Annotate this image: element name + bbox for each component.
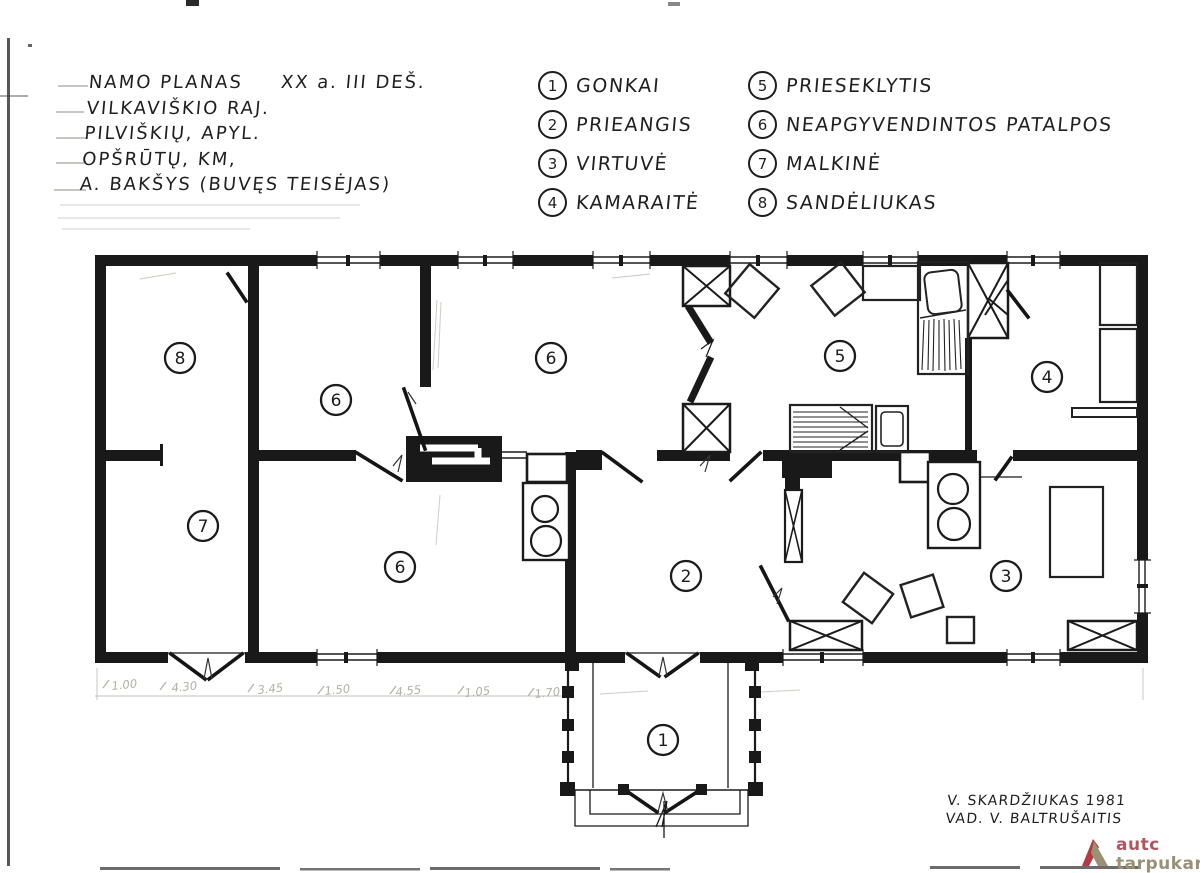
- parish-line: PILVIŠKIŲ, APYL.: [83, 121, 422, 147]
- plan-era: XX a. III DEŠ.: [280, 72, 427, 93]
- window: [317, 649, 377, 666]
- room-label: 6: [536, 343, 566, 373]
- legend-item: 5 PRIESEKLYTIS: [748, 72, 1113, 99]
- cook-stove: [523, 483, 569, 560]
- logo-text-top: autc: [1116, 835, 1160, 855]
- svg-text:1.70: 1.70: [534, 684, 561, 701]
- bed: [918, 262, 968, 374]
- chair: [901, 575, 944, 618]
- svg-text:3.45: 3.45: [257, 680, 284, 697]
- chair: [725, 264, 779, 318]
- title-line: NAMO PLANASXX a. III DEŠ.: [88, 70, 427, 96]
- svg-text:6: 6: [546, 349, 557, 369]
- door-leaf: [603, 453, 641, 481]
- village-line: OPŠRŪTŲ, KM,: [81, 147, 420, 173]
- door-leaf: [1008, 291, 1028, 317]
- legend-label: GONKAI: [575, 75, 661, 97]
- legend-item: 2 PRIEANGIS: [538, 111, 700, 138]
- legend-label: VIRTUVĖ: [575, 153, 669, 175]
- svg-text:4.55: 4.55: [395, 682, 422, 699]
- svg-text:1.00: 1.00: [111, 676, 138, 693]
- svg-text:5: 5: [835, 347, 846, 367]
- logo-triangle-icon: [1082, 839, 1108, 866]
- legend-label: SANDĖLIUKAS: [785, 192, 938, 214]
- zigzag-wall: [688, 306, 713, 402]
- door-leaf: [761, 567, 788, 620]
- legend-column-2: 5 PRIESEKLYTIS 6 NEAPGYVENDINTOS PATALPO…: [748, 72, 1113, 228]
- plan-title: NAMO PLANAS: [88, 72, 244, 93]
- window: [1134, 560, 1151, 613]
- dimension-numbers: 1.00 4.30 3.45 1.50 4.55 1.05 1.70: [111, 676, 561, 701]
- door-leaf: [357, 453, 401, 480]
- chimney-box: [790, 621, 862, 650]
- signature-block: V. SKARDŽIUKAS 1981 VAD. V. BALTRUŠAITIS: [945, 792, 1127, 828]
- legend-item: 6 NEAPGYVENDINTOS PATALPOS: [748, 111, 1113, 138]
- window: [730, 251, 787, 269]
- svg-text:4: 4: [1042, 368, 1053, 388]
- chimney-box: [785, 490, 802, 562]
- legend-label: MALKINĖ: [785, 153, 882, 175]
- autc-tarpukaris-logo: autc tarpukaris: [1080, 833, 1200, 873]
- legend-number-badge: 8: [748, 188, 777, 217]
- legend-number-badge: 1: [538, 71, 567, 100]
- chair: [843, 573, 893, 623]
- legend-column-1: 1 GONKAI 2 PRIEANGIS 3 VIRTUVĖ 4 KAMARAI…: [538, 72, 700, 228]
- room-label: 5: [825, 341, 855, 371]
- chimney-box: [683, 266, 730, 306]
- legend-item: 8 SANDĖLIUKAS: [748, 189, 1113, 216]
- title-block: NAMO PLANASXX a. III DEŠ. VILKAVIŠKIO RA…: [79, 70, 427, 198]
- svg-text:6: 6: [395, 558, 406, 578]
- legend-number-badge: 5: [748, 71, 777, 100]
- bed: [790, 405, 908, 452]
- legend-label: PRIEANGIS: [575, 114, 693, 136]
- chair: [947, 617, 974, 643]
- svg-text:3: 3: [1001, 567, 1012, 587]
- room-label: 2: [671, 561, 701, 591]
- bench: [1072, 408, 1137, 417]
- room-label: 6: [321, 385, 351, 415]
- room-label: 1: [648, 725, 678, 755]
- author-line: V. SKARDŽIUKAS 1981: [946, 792, 1126, 810]
- window: [317, 251, 380, 269]
- svg-text:7: 7: [198, 517, 209, 537]
- door-leaf: [628, 792, 657, 812]
- svg-text:1.05: 1.05: [464, 683, 491, 700]
- window: [458, 251, 513, 269]
- room-label: 6: [385, 552, 415, 582]
- legend-label: NEAPGYVENDINTOS PATALPOS: [785, 114, 1114, 136]
- legend-number-badge: 6: [748, 110, 777, 139]
- room-label: 3: [991, 561, 1021, 591]
- legend-item: 1 GONKAI: [538, 72, 700, 99]
- window: [783, 649, 863, 666]
- legend-number-badge: 2: [538, 110, 567, 139]
- svg-text:6: 6: [331, 391, 342, 411]
- room-label: 4: [1032, 362, 1062, 392]
- legend-item: 3 VIRTUVĖ: [538, 150, 700, 177]
- svg-text:2: 2: [681, 567, 692, 587]
- supervisor-line: VAD. V. BALTRUŠAITIS: [945, 810, 1125, 828]
- svg-text:8: 8: [175, 349, 186, 369]
- wardrobe: [1100, 263, 1137, 325]
- logo-text-bottom: tarpukaris: [1116, 854, 1200, 873]
- door-leaf: [228, 274, 246, 301]
- room-label: 8: [165, 343, 195, 373]
- door-leaves: [171, 274, 1028, 812]
- owner-line: A. BAKŠYS (BUVĘS TEISĖJAS): [79, 172, 418, 198]
- chimney-box: [1068, 621, 1137, 650]
- svg-text:1.50: 1.50: [324, 681, 351, 698]
- chimney-box: [683, 404, 730, 452]
- legend-number-badge: 3: [538, 149, 567, 178]
- cook-stove: [928, 462, 980, 548]
- svg-text:1: 1: [658, 731, 669, 751]
- chimney-box: [968, 263, 1008, 338]
- window: [1007, 649, 1060, 666]
- table: [1050, 487, 1103, 577]
- room-label: 7: [188, 511, 218, 541]
- door-leaf: [996, 458, 1011, 479]
- window: [593, 251, 650, 269]
- door-leaf: [666, 792, 697, 812]
- legend-label: PRIESEKLYTIS: [785, 75, 934, 97]
- chair: [811, 262, 864, 315]
- window: [1007, 251, 1060, 269]
- legend-number-badge: 7: [748, 149, 777, 178]
- legend-item: 4 KAMARAITĖ: [538, 189, 700, 216]
- svg-text:4.30: 4.30: [171, 678, 198, 695]
- legend-label: KAMARAITĖ: [575, 192, 700, 214]
- legend-item: 7 MALKINĖ: [748, 150, 1113, 177]
- table: [863, 266, 920, 300]
- district-line: VILKAVIŠKIO RAJ.: [86, 96, 425, 122]
- door-leaf: [731, 453, 760, 480]
- legend-number-badge: 4: [538, 188, 567, 217]
- wardrobe: [1100, 329, 1137, 402]
